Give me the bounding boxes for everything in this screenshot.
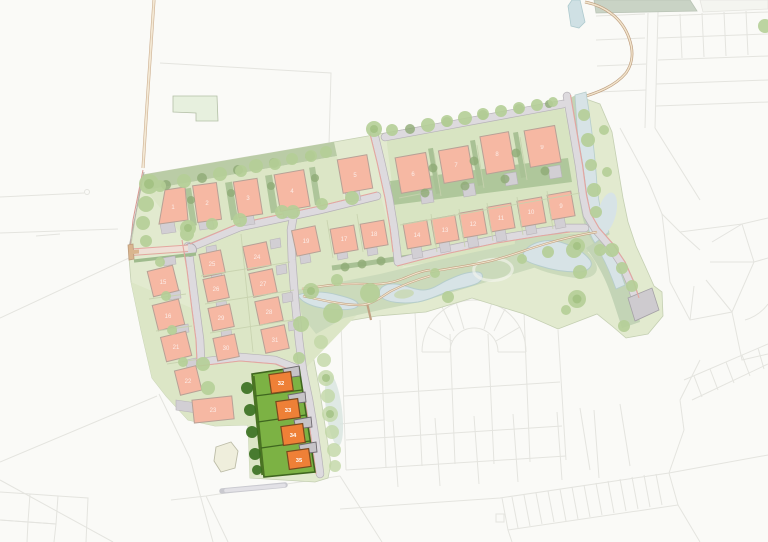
svg-text:19: 19 [303,239,310,245]
svg-text:23: 23 [210,408,217,414]
svg-text:24: 24 [254,255,261,261]
svg-text:34: 34 [290,433,297,439]
svg-text:32: 32 [278,381,284,387]
svg-text:10: 10 [528,210,535,216]
svg-text:25: 25 [209,262,216,268]
svg-text:35: 35 [296,458,303,464]
svg-text:17: 17 [341,237,348,243]
svg-text:11: 11 [498,216,505,222]
svg-text:28: 28 [266,310,273,316]
svg-text:13: 13 [442,228,449,234]
svg-text:33: 33 [285,408,292,414]
svg-text:31: 31 [272,338,279,344]
svg-text:16: 16 [165,314,172,320]
svg-text:27: 27 [260,282,267,288]
svg-text:29: 29 [218,316,225,322]
svg-text:22: 22 [185,379,192,385]
svg-text:18: 18 [371,232,378,238]
svg-text:26: 26 [213,287,220,293]
svg-text:15: 15 [160,280,167,286]
svg-text:14: 14 [414,233,421,239]
svg-text:12: 12 [470,222,477,228]
svg-text:30: 30 [223,346,230,352]
svg-text:21: 21 [173,345,180,351]
